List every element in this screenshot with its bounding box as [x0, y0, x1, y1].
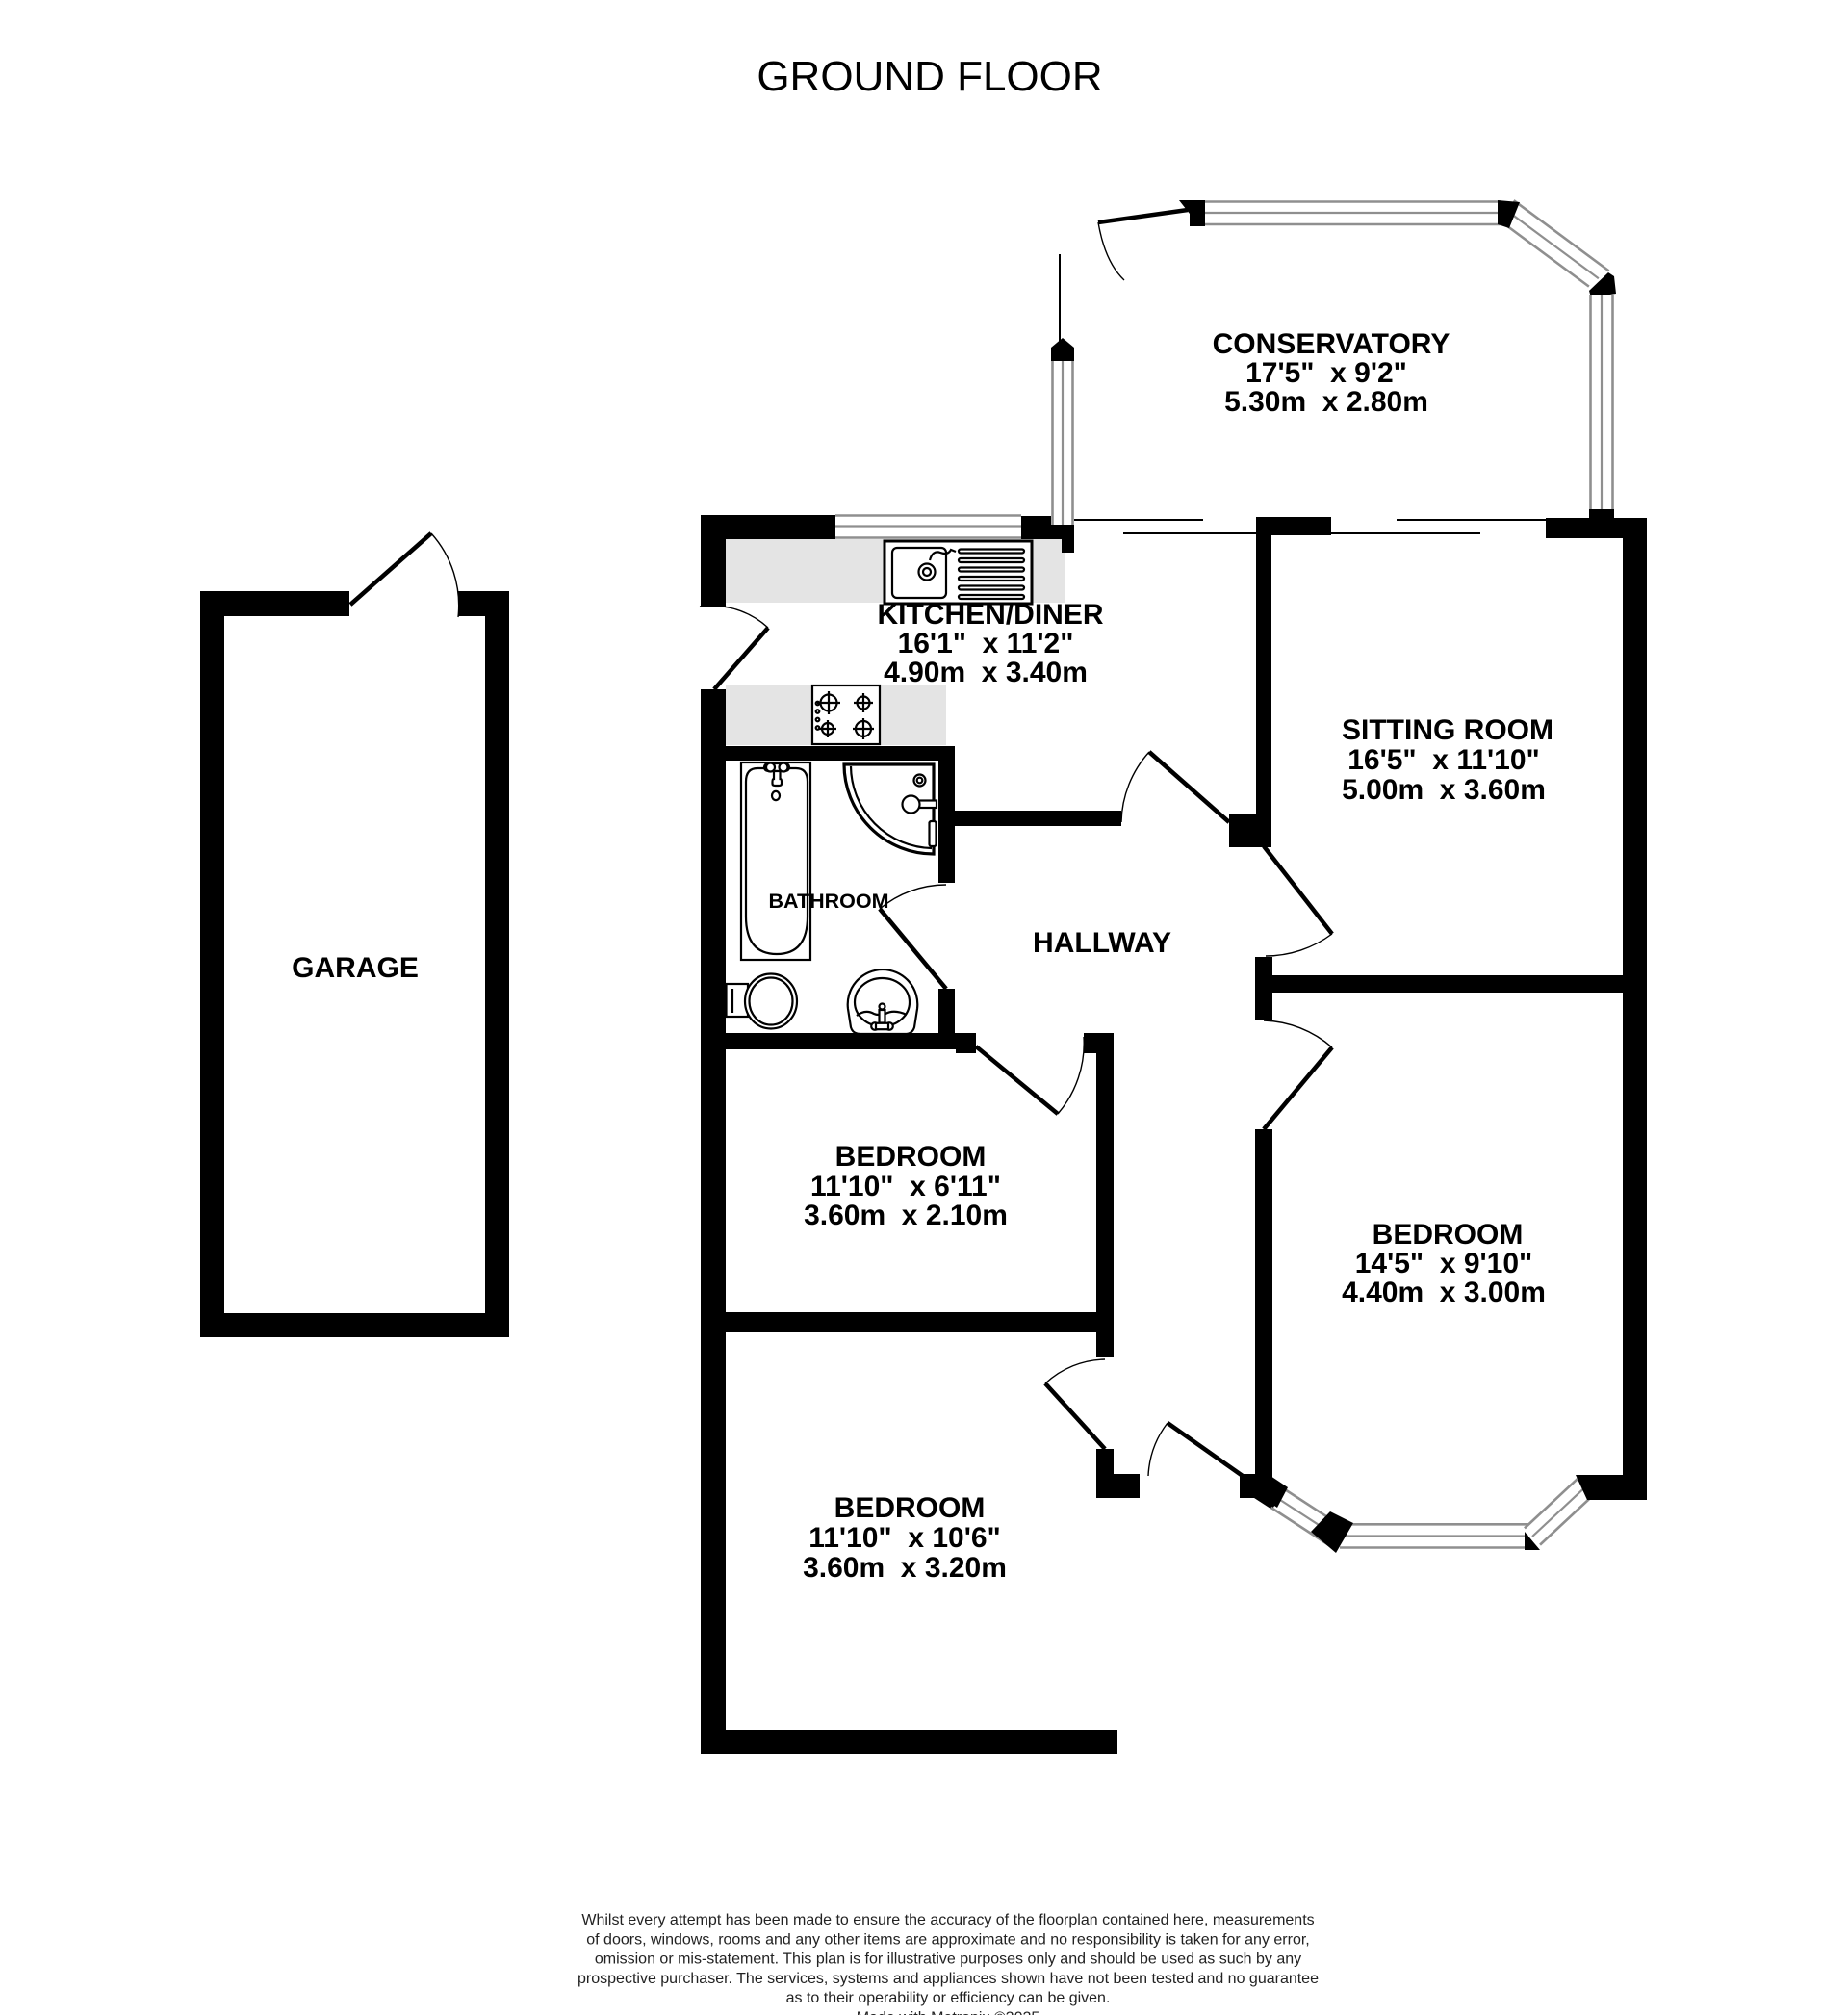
svg-text:BEDROOM: BEDROOM	[1373, 1219, 1524, 1251]
svg-text:17'5" x 9'2": 17'5" x 9'2"	[1245, 357, 1407, 389]
svg-text:omission or mis-statement. Thi: omission or mis-statement. This plan is …	[595, 1951, 1301, 1968]
svg-text:Whilst every attempt has been: Whilst every attempt has been made to en…	[581, 1912, 1314, 1928]
svg-text:3.60m x 3.20m: 3.60m x 3.20m	[803, 1552, 1007, 1584]
svg-text:KITCHEN/DINER: KITCHEN/DINER	[877, 599, 1103, 631]
svg-text:4.40m x 3.00m: 4.40m x 3.00m	[1342, 1277, 1546, 1308]
svg-text:SITTING ROOM: SITTING ROOM	[1342, 714, 1553, 746]
svg-text:BATHROOM: BATHROOM	[768, 890, 888, 913]
svg-text:BEDROOM: BEDROOM	[835, 1141, 987, 1173]
svg-text:Made with Metropix ©2025: Made with Metropix ©2025	[857, 2010, 1040, 2015]
svg-text:16'5" x 11'10": 16'5" x 11'10"	[1347, 744, 1540, 776]
svg-text:HALLWAY: HALLWAY	[1033, 927, 1171, 959]
svg-text:5.30m x 2.80m: 5.30m x 2.80m	[1224, 386, 1428, 418]
svg-text:4.90m x 3.40m: 4.90m x 3.40m	[884, 657, 1088, 688]
svg-text:GROUND FLOOR: GROUND FLOOR	[757, 53, 1102, 100]
svg-text:GARAGE: GARAGE	[292, 952, 419, 984]
svg-text:11'10" x 6'11": 11'10" x 6'11"	[810, 1171, 1001, 1202]
svg-text:5.00m x 3.60m: 5.00m x 3.60m	[1342, 774, 1546, 806]
svg-text:as to their operability or eff: as to their operability or efficiency ca…	[786, 1990, 1111, 2006]
svg-text:11'10" x 10'6": 11'10" x 10'6"	[808, 1522, 1001, 1554]
svg-text:14'5" x 9'10": 14'5" x 9'10"	[1355, 1248, 1533, 1279]
svg-text:16'1" x 11'2": 16'1" x 11'2"	[898, 628, 1074, 659]
svg-text:3.60m x 2.10m: 3.60m x 2.10m	[804, 1200, 1008, 1231]
svg-text:BEDROOM: BEDROOM	[834, 1492, 986, 1524]
svg-text:CONSERVATORY: CONSERVATORY	[1213, 328, 1450, 360]
svg-text:prospective purchaser. The ser: prospective purchaser. The services, sys…	[577, 1971, 1319, 1987]
svg-text:of doors, windows, rooms and a: of doors, windows, rooms and any other i…	[586, 1931, 1309, 1948]
